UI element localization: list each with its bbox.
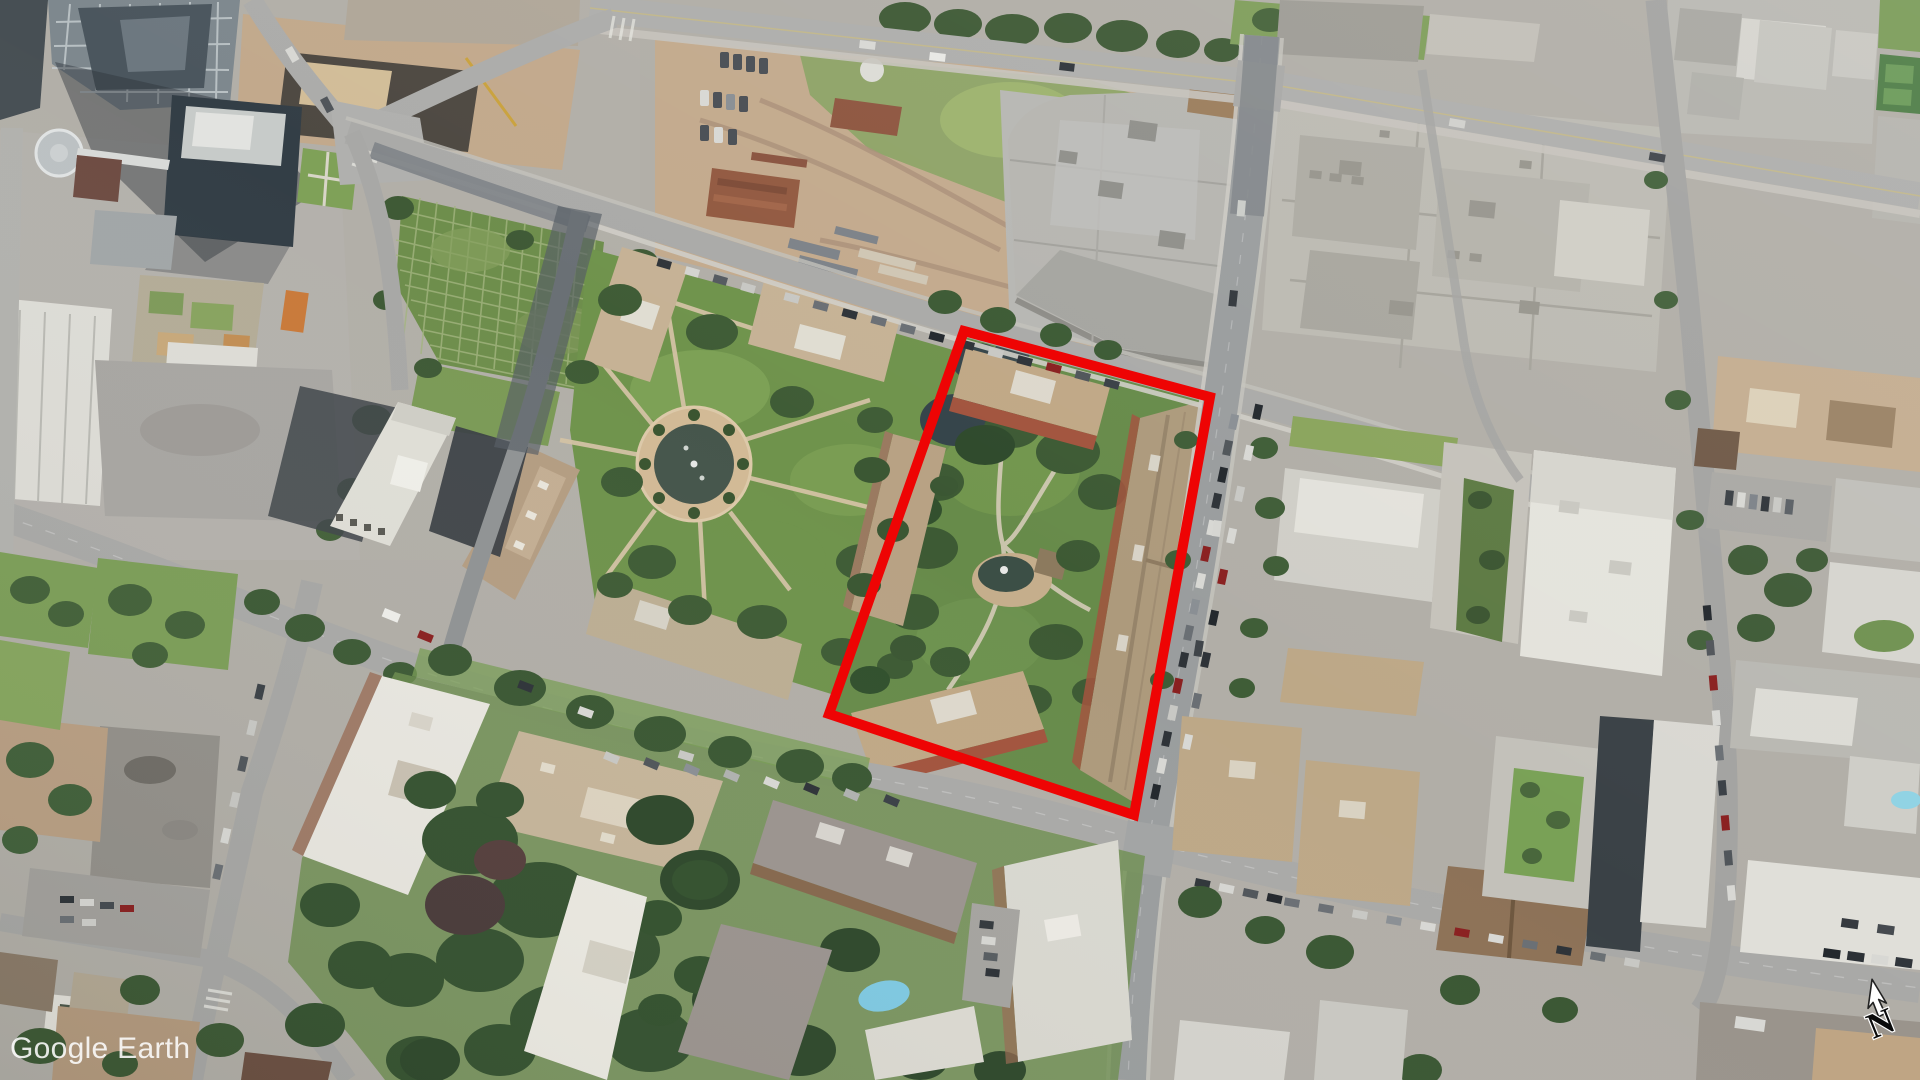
svg-text:Google Earth: Google Earth (10, 1032, 190, 1065)
